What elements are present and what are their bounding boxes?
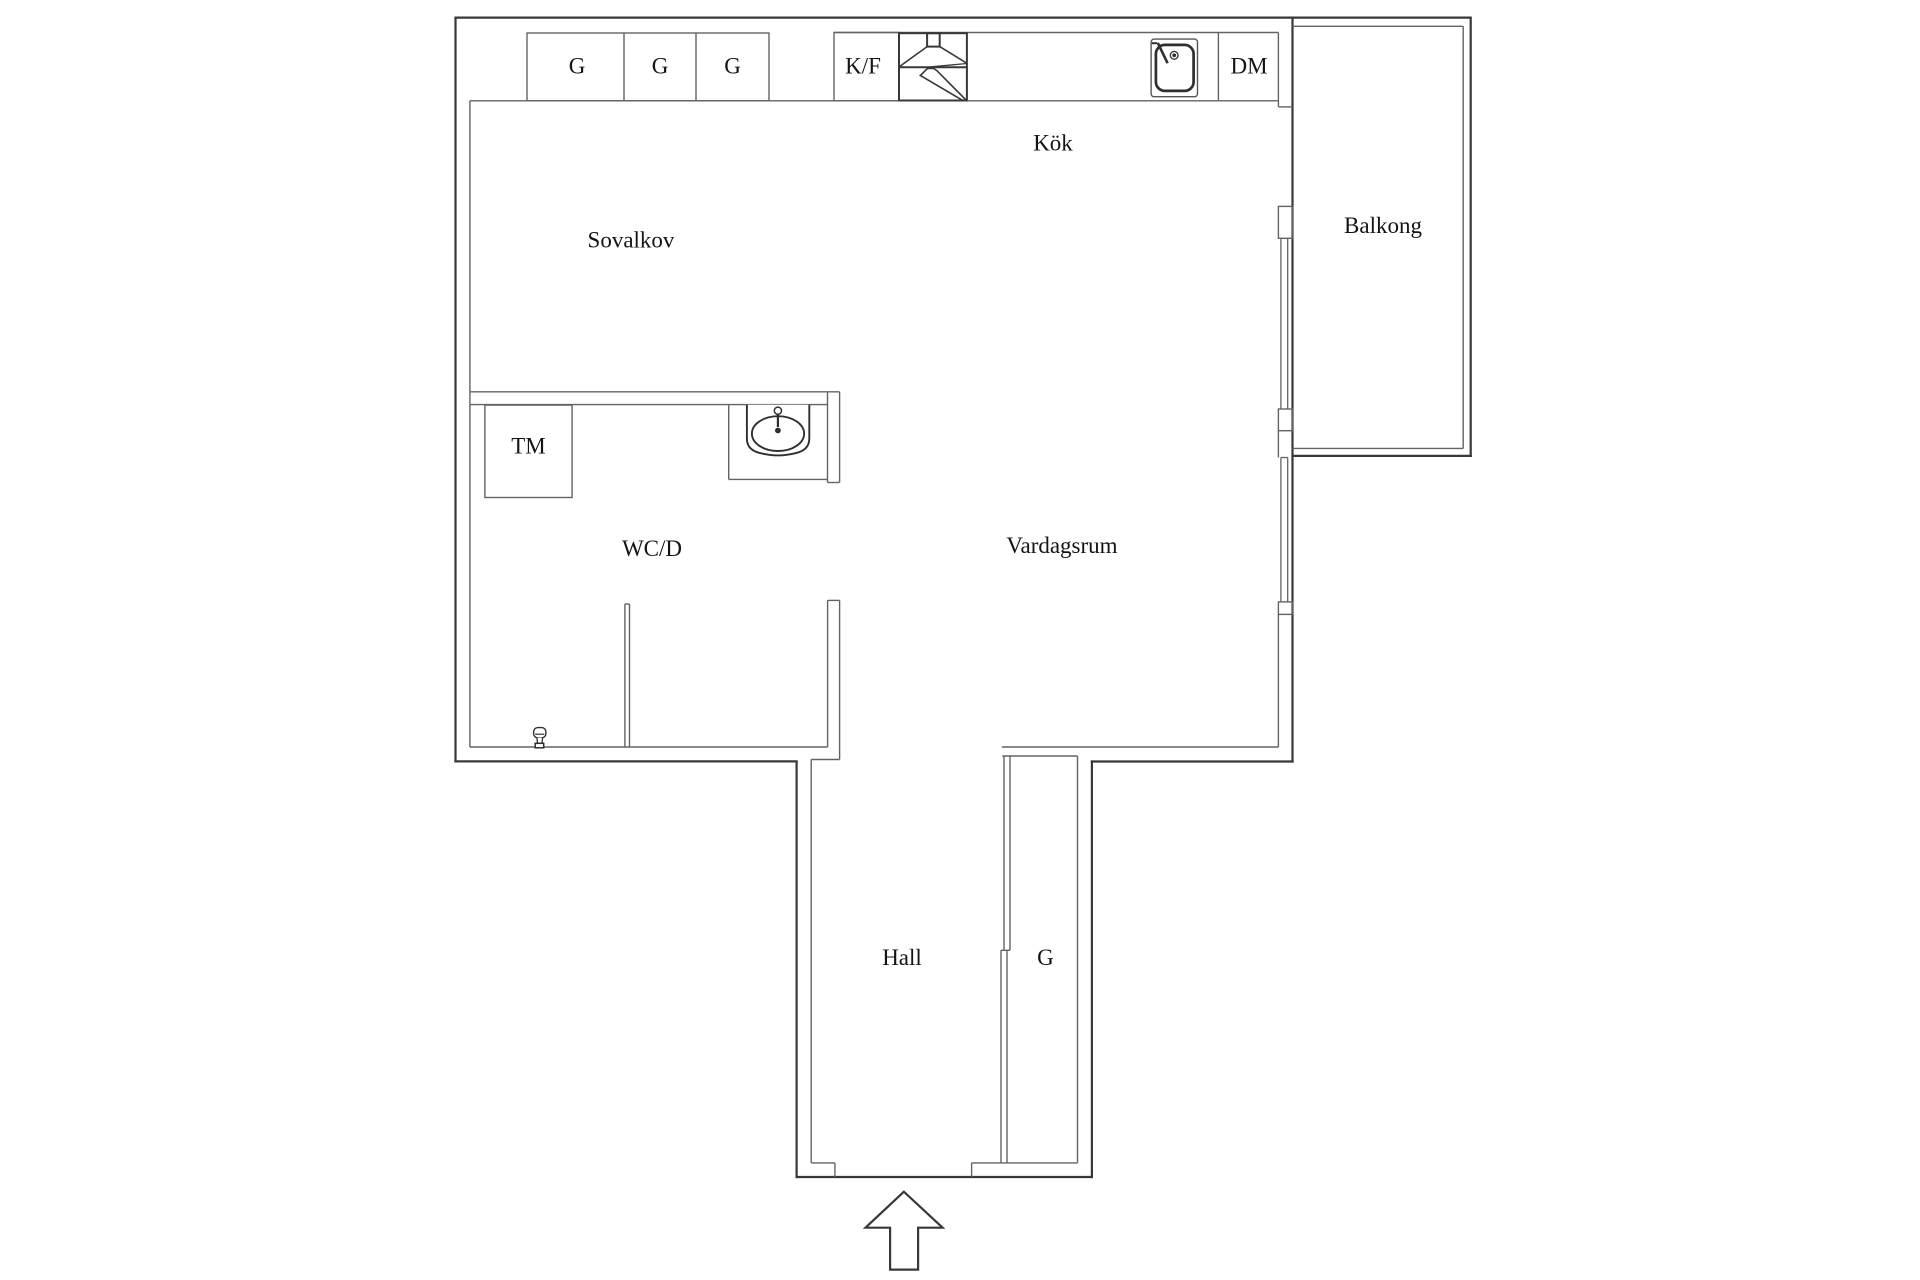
svg-text:Sovalkov: Sovalkov [588, 228, 675, 253]
svg-text:WC/D: WC/D [622, 536, 682, 561]
svg-text:TM: TM [511, 434, 546, 459]
svg-text:Vardagsrum: Vardagsrum [1006, 533, 1117, 558]
svg-text:G: G [652, 54, 669, 79]
svg-text:G: G [724, 54, 741, 79]
svg-text:DM: DM [1230, 54, 1267, 79]
svg-text:G: G [1037, 945, 1054, 970]
svg-text:Kök: Kök [1033, 131, 1073, 156]
svg-text:G: G [569, 54, 586, 79]
svg-text:Hall: Hall [882, 945, 922, 970]
svg-text:Balkong: Balkong [1344, 213, 1422, 238]
svg-text:K/F: K/F [845, 54, 881, 79]
